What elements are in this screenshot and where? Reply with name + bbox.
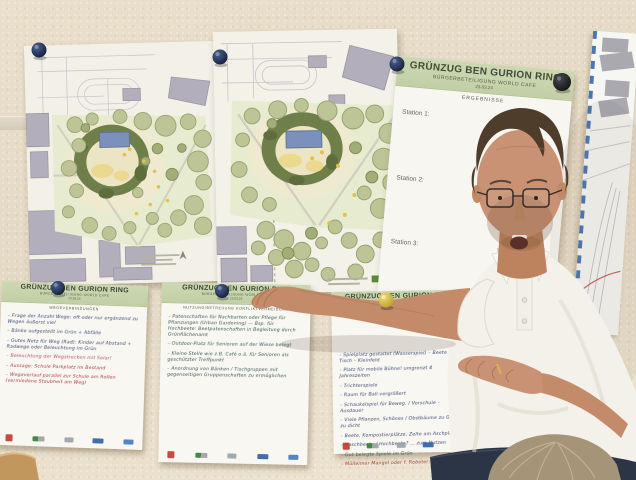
arm-cast-shadow	[280, 335, 456, 353]
photo-scene: GRÜNZUG BEN GURION RING BÜRGERBETEILIGUN…	[0, 0, 636, 480]
pin-plan-left	[32, 43, 47, 61]
pin-sheet2	[215, 284, 229, 301]
pin-flipchart-right	[553, 73, 571, 93]
pin-sheet1	[51, 281, 65, 298]
presenter-extended-arm	[252, 287, 470, 342]
eye-right	[534, 196, 538, 200]
mouth	[510, 237, 528, 250]
pin-flipchart-left	[390, 57, 405, 75]
figures-layer	[0, 0, 636, 480]
polo-button	[522, 298, 527, 303]
pin-sheet3-yellow	[379, 293, 394, 311]
polo-button	[522, 319, 527, 324]
eye-left	[498, 196, 502, 200]
pin-between-plans	[213, 50, 228, 68]
